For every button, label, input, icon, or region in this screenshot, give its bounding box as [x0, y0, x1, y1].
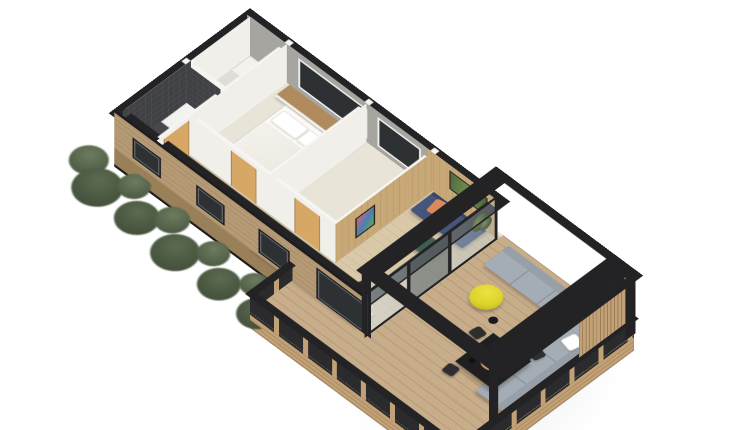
pergola-beam-left: [356, 162, 517, 282]
floorplan-render-canvas: [0, 0, 750, 430]
cabin-3d-plan: [114, 47, 625, 426]
